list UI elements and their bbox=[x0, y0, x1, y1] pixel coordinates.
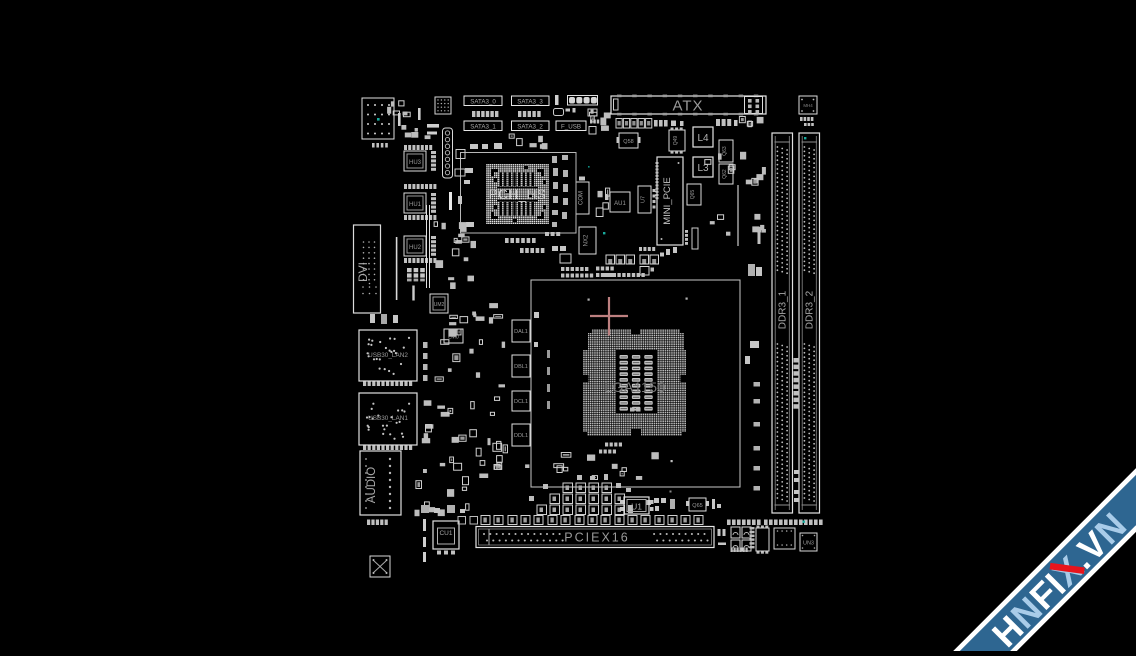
svg-text:UN3: UN3 bbox=[803, 541, 814, 547]
svg-text:USB30_LAN2: USB30_LAN2 bbox=[368, 352, 408, 359]
svg-text:DAL1: DAL1 bbox=[514, 329, 528, 335]
svg-text:DDL1: DDL1 bbox=[514, 433, 528, 439]
svg-text:AU1: AU1 bbox=[614, 201, 626, 207]
svg-text:AUDIO: AUDIO bbox=[366, 467, 378, 503]
svg-text:DDR3_2: DDR3_2 bbox=[805, 290, 816, 329]
svg-text:U1: U1 bbox=[631, 502, 642, 512]
svg-text:SATA3_0: SATA3_0 bbox=[470, 99, 496, 106]
svg-text:LGA1150: LGA1150 bbox=[604, 379, 666, 395]
svg-text:SATA3_3: SATA3_3 bbox=[517, 99, 543, 106]
svg-text:F_USB: F_USB bbox=[561, 124, 581, 131]
svg-text:U7: U7 bbox=[641, 196, 647, 203]
svg-text:DVI: DVI bbox=[356, 262, 370, 282]
svg-text:HU2: HU2 bbox=[409, 245, 422, 251]
svg-text:NX2: NX2 bbox=[584, 234, 590, 246]
svg-text:Q65: Q65 bbox=[690, 190, 696, 200]
svg-text:DBL1: DBL1 bbox=[514, 364, 528, 370]
svg-text:CU1: CU1 bbox=[439, 530, 452, 537]
svg-text:Q58: Q58 bbox=[623, 139, 633, 145]
svg-text:SATA3_2: SATA3_2 bbox=[517, 124, 543, 131]
svg-text:HU3: HU3 bbox=[409, 160, 422, 166]
svg-text:HU1: HU1 bbox=[409, 202, 422, 208]
svg-text:L4: L4 bbox=[697, 133, 709, 144]
svg-text:ATX: ATX bbox=[672, 98, 703, 115]
svg-text:USB30_LAN1: USB30_LAN1 bbox=[368, 415, 408, 422]
svg-text:MH4: MH4 bbox=[803, 103, 813, 108]
svg-text:Q65: Q65 bbox=[692, 503, 702, 509]
svg-text:DDR3_1: DDR3_1 bbox=[778, 290, 789, 329]
svg-text:COM: COM bbox=[579, 191, 585, 205]
svg-text:Q63: Q63 bbox=[722, 146, 728, 156]
svg-text:Q49: Q49 bbox=[673, 136, 679, 146]
svg-text:PCH_HS: PCH_HS bbox=[489, 187, 547, 202]
svg-text:DCL1: DCL1 bbox=[514, 399, 528, 405]
svg-text:PCIEX16: PCIEX16 bbox=[564, 531, 629, 545]
svg-text:Q62: Q62 bbox=[722, 169, 728, 179]
svg-text:MINI_PCIE: MINI_PCIE bbox=[662, 177, 673, 225]
svg-text:SATA3_1: SATA3_1 bbox=[470, 124, 496, 131]
svg-text:UM2: UM2 bbox=[434, 302, 445, 308]
